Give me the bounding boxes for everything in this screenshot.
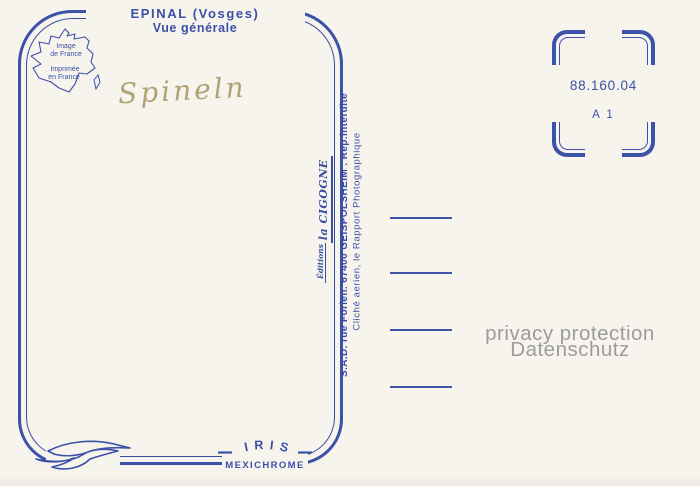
brand-process-text: MEXICHROME [225, 460, 304, 471]
stamp-frame: 88.160.04 A 1 [552, 30, 655, 157]
stamp-corner-top-left-icon [552, 30, 585, 65]
stamp-series-code: A 1 [552, 109, 655, 121]
handwritten-note: Spineln [117, 71, 249, 111]
swallow-icon [34, 439, 132, 473]
postcard-title: EPINAL (Vosges) Vue générale [92, 7, 298, 35]
stamp-corner-bottom-left-icon [552, 122, 585, 157]
svg-text:IRIS: IRIS [243, 438, 296, 457]
publisher-editions-label: Éditions [316, 243, 326, 283]
brand-name-text: IRIS [243, 438, 296, 457]
print-mark-text-3: Imprimée [50, 66, 79, 73]
title-line-2: Vue générale [92, 21, 298, 35]
publisher-name: la CIGOGNE [317, 156, 333, 243]
privacy-watermark: privacy protection Datenschutz [466, 326, 674, 358]
brand-dash-left [218, 451, 232, 453]
publisher-address: S.A.D. rue Forlen. 67400 GEISPOLSHEIM . … [339, 85, 351, 385]
scan-edge-tint [0, 474, 700, 486]
postcard-back-scan: EPINAL (Vosges) Vue générale Image de Fr… [0, 0, 700, 486]
stamp-corner-top-right-icon [622, 30, 655, 65]
publisher-credit: Cliché aerien, le Rapport Photographique [352, 107, 363, 357]
address-ruling-line [390, 386, 452, 388]
address-ruling-line [390, 272, 452, 274]
address-ruling-line [390, 217, 452, 219]
print-mark-text-1: Image [56, 43, 76, 50]
title-line-1: EPINAL (Vosges) [92, 7, 298, 21]
print-mark-text-4: en France [48, 74, 80, 81]
france-map-icon: Image de France Imprimée en France [28, 26, 106, 104]
brand-logo: IRIS MEXICHROME [218, 438, 312, 472]
address-ruling-line [390, 329, 452, 331]
stamp-reference-number: 88.160.04 [552, 78, 655, 93]
brand-dash-right [298, 451, 312, 453]
print-mark-text-2: de France [50, 51, 82, 58]
publisher-logo: Éditionsla CIGOGNE [313, 173, 333, 283]
stamp-corner-bottom-right-icon [622, 122, 655, 157]
